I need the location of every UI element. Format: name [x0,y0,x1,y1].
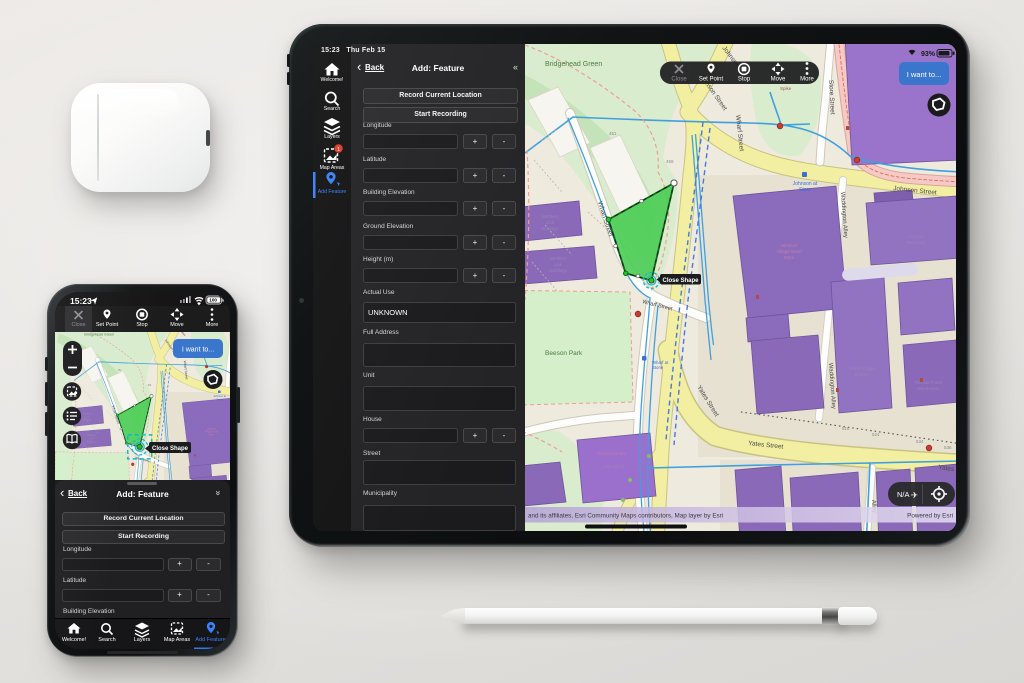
svg-text:I want to...: I want to... [182,347,214,354]
svg-text:Move: Move [771,77,786,83]
svg-text:Powered by Esri: Powered by Esri [907,513,953,520]
svg-text:More: More [206,322,219,328]
svg-text:Set Point: Set Point [699,77,724,83]
svg-text:Welcome!: Welcome! [62,637,87,643]
svg-text:Close: Close [71,322,85,328]
svg-text:Search: Search [324,106,341,112]
svg-text:100: 100 [209,298,217,303]
svg-text:Add Feature: Add Feature [195,637,225,643]
svg-text:Welcome!: Welcome! [321,77,344,83]
svg-text:Layers: Layers [324,134,340,140]
svg-text:Layers: Layers [134,637,151,643]
svg-text:I want to...: I want to... [907,70,942,79]
svg-text:and its affiliates, Esri Commu: and its affiliates, Esri Community Maps … [528,513,723,520]
svg-text:Stop: Stop [136,322,147,328]
svg-text:Map Areas: Map Areas [320,165,345,171]
svg-text:Map Areas: Map Areas [164,637,191,643]
svg-text:15:23: 15:23 [70,296,92,306]
svg-text:Set Point: Set Point [96,322,119,328]
svg-text:Search: Search [98,637,115,643]
svg-text:Stop: Stop [738,77,751,83]
svg-text:Close Shape: Close Shape [152,446,189,452]
svg-text:More: More [800,77,814,83]
svg-text:1: 1 [337,147,340,153]
svg-text:93%: 93% [921,51,936,58]
svg-text:Add Feature: Add Feature [318,189,347,195]
svg-text:Move: Move [170,322,183,328]
svg-text:Close Shape: Close Shape [662,278,699,284]
svg-text:✈: ✈ [911,490,919,500]
svg-text:N/A: N/A [897,490,910,499]
svg-text:Close: Close [671,77,687,83]
